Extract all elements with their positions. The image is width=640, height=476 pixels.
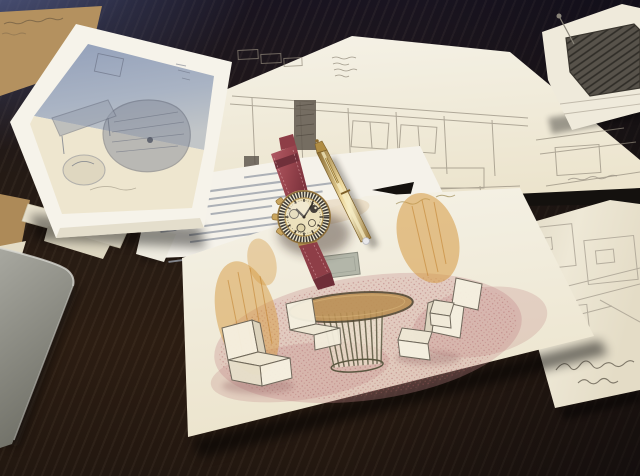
pen-end-cap (363, 238, 370, 245)
gray-object (0, 248, 78, 448)
scene-illustration (0, 0, 640, 476)
photo-desk-scene (0, 0, 640, 476)
